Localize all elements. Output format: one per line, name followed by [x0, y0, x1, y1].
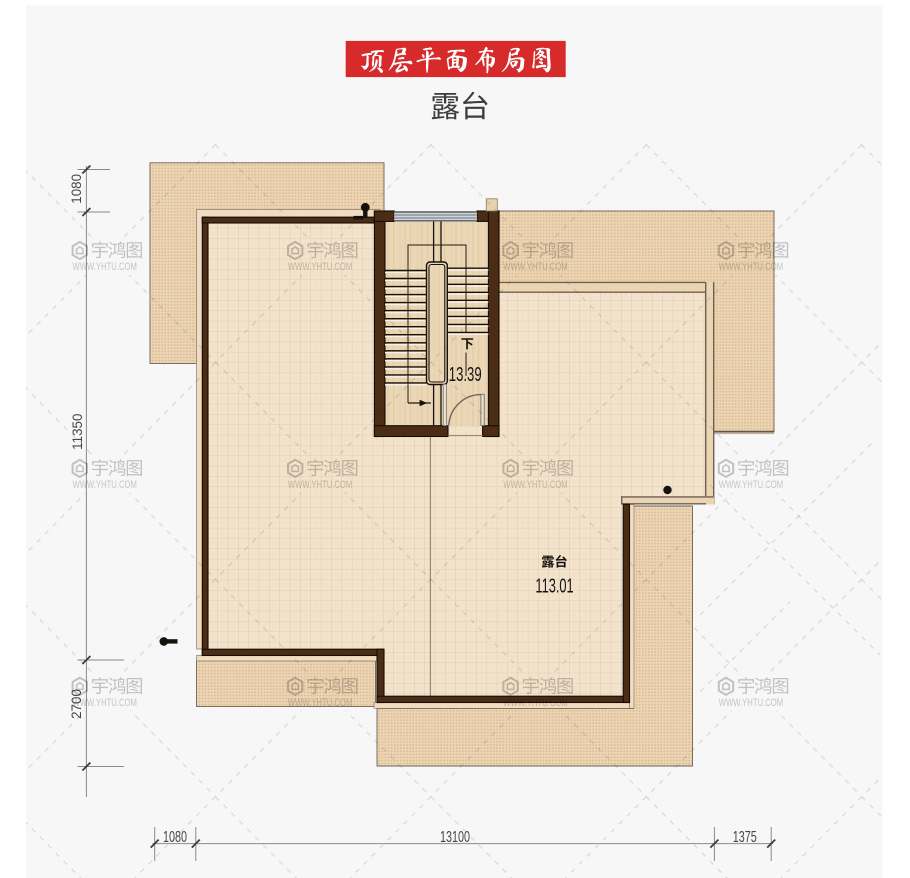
svg-text:WWW.YHTU.COM: WWW.YHTU.COM — [503, 697, 567, 710]
svg-text:WWW.YHTU.COM: WWW.YHTU.COM — [73, 479, 137, 492]
svg-text:WWW.YHTU.COM: WWW.YHTU.COM — [73, 261, 137, 274]
svg-text:WWW.YHTU.COM: WWW.YHTU.COM — [719, 697, 783, 710]
svg-text:WWW.YHTU.COM: WWW.YHTU.COM — [503, 261, 567, 274]
svg-text:WWW.YHTU.COM: WWW.YHTU.COM — [503, 479, 567, 492]
svg-text:WWW.YHTU.COM: WWW.YHTU.COM — [719, 261, 783, 274]
svg-text:WWW.YHTU.COM: WWW.YHTU.COM — [73, 697, 137, 710]
svg-text:WWW.YHTU.COM: WWW.YHTU.COM — [719, 479, 783, 492]
svg-text:WWW.YHTU.COM: WWW.YHTU.COM — [288, 479, 352, 492]
svg-text:WWW.YHTU.COM: WWW.YHTU.COM — [288, 261, 352, 274]
svg-text:WWW.YHTU.COM: WWW.YHTU.COM — [288, 697, 352, 710]
